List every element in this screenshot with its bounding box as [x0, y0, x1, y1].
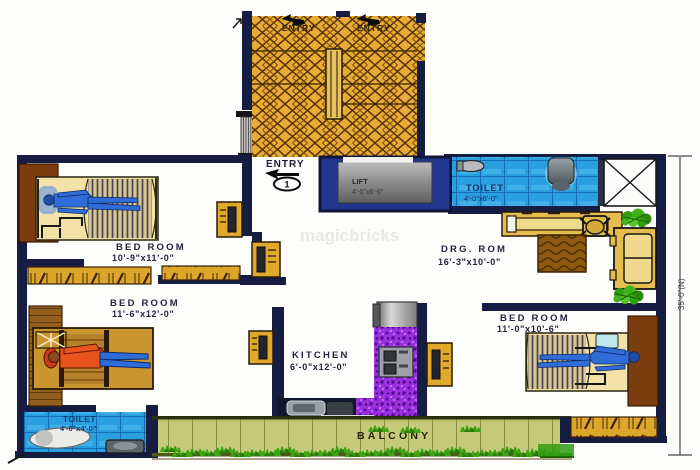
svg-text:BED ROOM: BED ROOM [500, 313, 570, 324]
svg-text:BED ROOM: BED ROOM [116, 242, 186, 253]
svg-text:ENTRY: ENTRY [266, 159, 305, 170]
svg-text:BED ROOM: BED ROOM [110, 298, 180, 309]
svg-text:KITCHEN: KITCHEN [292, 350, 350, 361]
svg-text:1: 1 [285, 180, 290, 190]
svg-text:TOILET: TOILET [466, 183, 504, 193]
svg-text:4'-0"x6'-0": 4'-0"x6'-0" [464, 194, 498, 203]
svg-text:11'-6"x12'-0": 11'-6"x12'-0" [112, 309, 174, 319]
svg-text:4'-0"x4'-0": 4'-0"x4'-0" [60, 424, 97, 433]
svg-text:magicbricks: magicbricks [300, 226, 399, 245]
svg-text:ENTRY: ENTRY [282, 23, 316, 33]
svg-text:LIFT: LIFT [352, 177, 368, 186]
svg-text:10'-9"x11'-0": 10'-9"x11'-0" [112, 253, 174, 263]
svg-text:35'-0"(N): 35'-0"(N) [677, 278, 686, 310]
svg-text:6'-0"x12'-0": 6'-0"x12'-0" [290, 362, 347, 372]
svg-text:16'-3"x10'-0": 16'-3"x10'-0" [438, 257, 501, 267]
svg-text:TOILET: TOILET [63, 414, 96, 424]
svg-text:DRG. ROM: DRG. ROM [441, 244, 507, 255]
svg-text:ENTRY: ENTRY [357, 23, 391, 33]
svg-text:11'-0"x10'-6": 11'-0"x10'-6" [497, 324, 559, 334]
svg-text:4'-0"x6'-6": 4'-0"x6'-6" [352, 189, 384, 196]
